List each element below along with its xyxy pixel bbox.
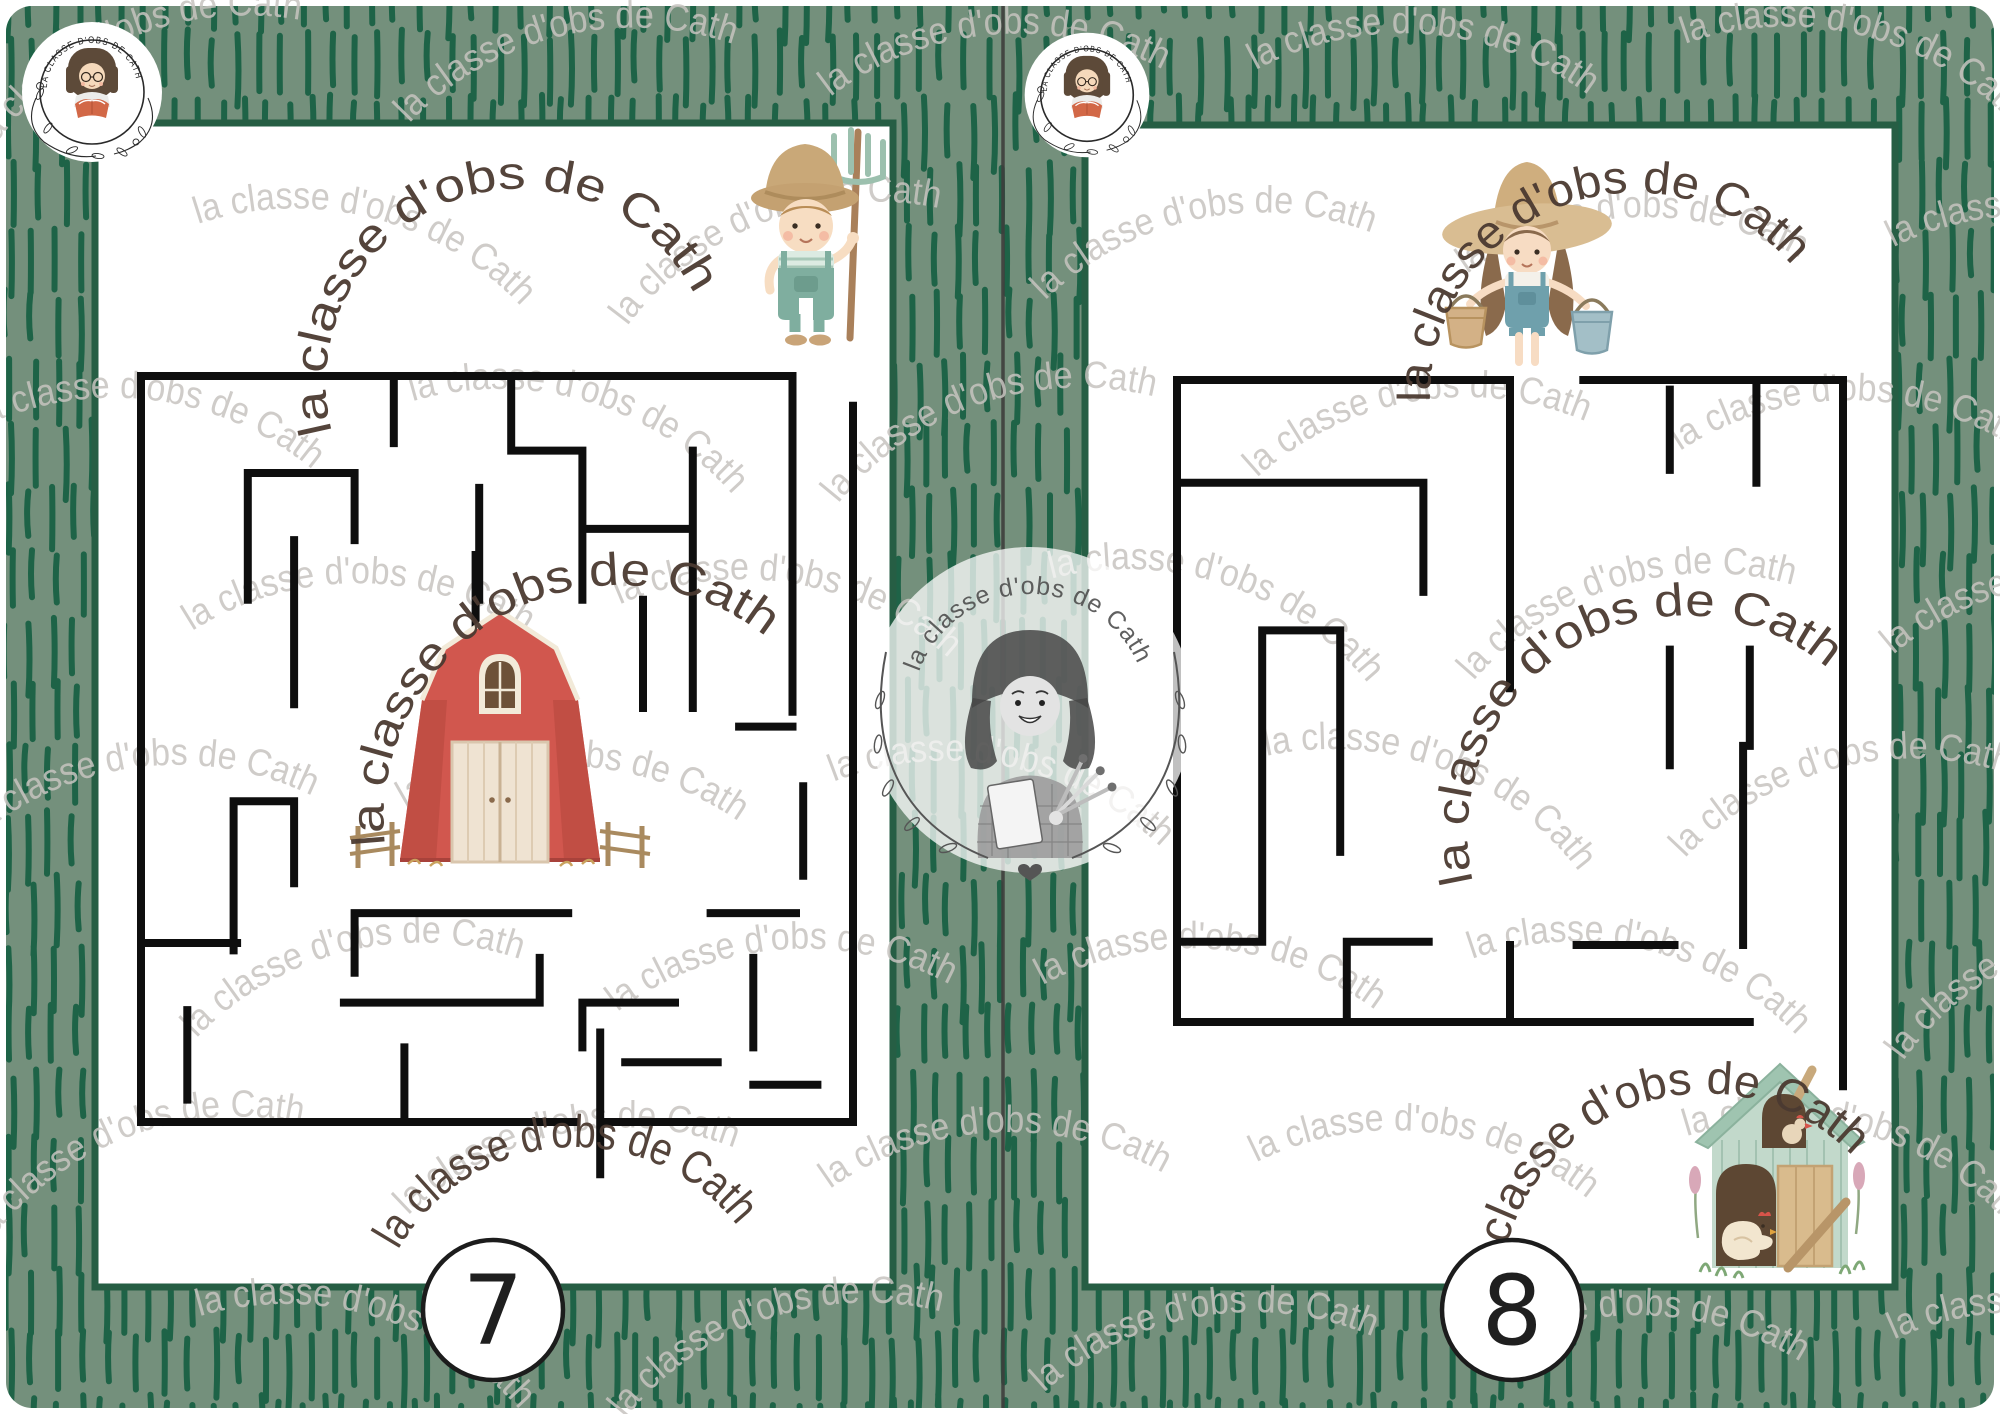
page-number-badge-7: 7 xyxy=(423,1240,563,1380)
page-number-7: 7 xyxy=(462,1255,523,1367)
page-number-8: 8 xyxy=(1481,1255,1542,1367)
worksheet-double-page: la classe d'obs de Cathla classe d'obs d… xyxy=(0,0,2000,1414)
worksheet-scene: la classe d'obs de Cathla classe d'obs d… xyxy=(0,0,2000,1414)
page-number-badge-8: 8 xyxy=(1442,1240,1582,1380)
brand-badge-right: LA CLASSE D'OBS DE CATH xyxy=(1025,33,1150,158)
brand-badge-left: LA CLASSE D'OBS DE CATH xyxy=(22,22,162,162)
